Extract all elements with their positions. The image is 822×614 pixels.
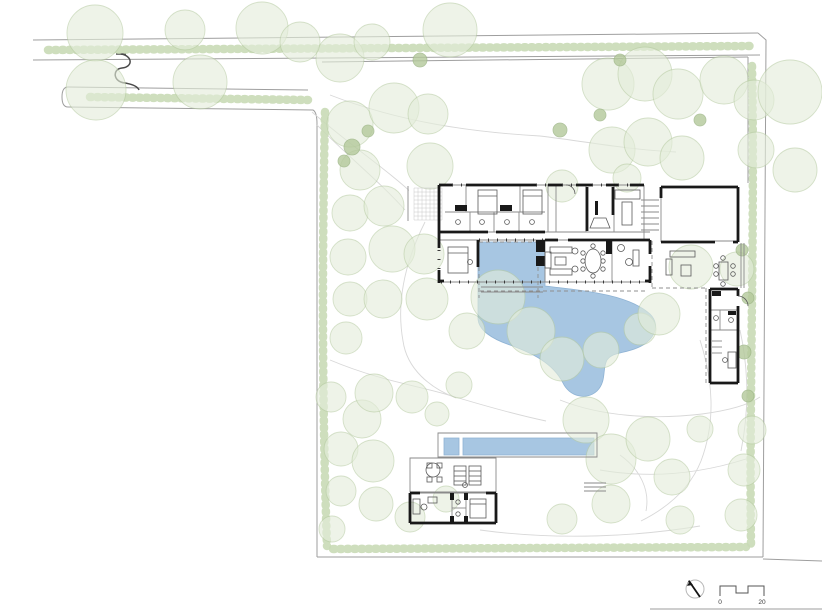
site-plan-svg: 0 20 bbox=[0, 0, 822, 614]
north-needle bbox=[689, 581, 700, 597]
scale-bar bbox=[720, 586, 764, 596]
site-plan-page: 0 20 bbox=[0, 0, 822, 614]
scale-label-end: 20 bbox=[758, 599, 766, 606]
scale-label-start: 0 bbox=[718, 599, 722, 606]
